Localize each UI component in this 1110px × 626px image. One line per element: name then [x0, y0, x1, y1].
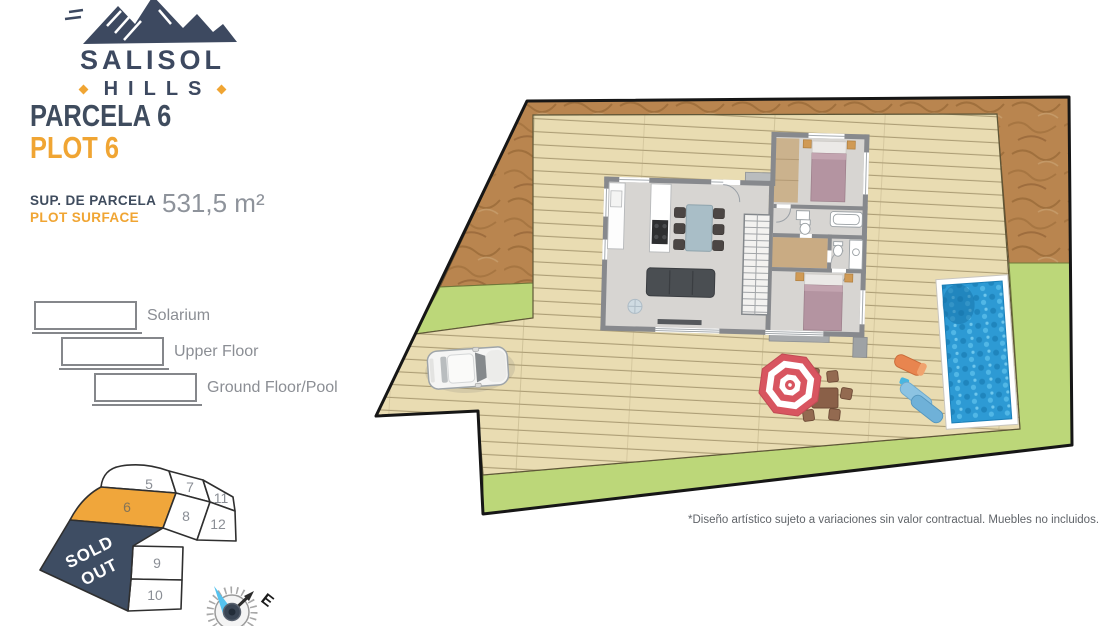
staircase: [742, 214, 771, 315]
legend-swatch: [94, 373, 197, 402]
diamond-icon: [78, 85, 88, 95]
legend-label: Ground Floor/Pool: [207, 379, 338, 397]
plot-map: 5 7 11 6 8 12 9 10 SOLD OUT: [40, 465, 236, 611]
car-windshield: [475, 352, 487, 383]
legend-label: Solarium: [147, 307, 210, 325]
kitchen-sink: [611, 191, 622, 207]
ac-unit: [853, 337, 868, 357]
surface-label-en: PLOT SURFACE: [30, 210, 156, 225]
legend-item-ground-floor-pool: Ground Floor/Pool: [94, 373, 338, 402]
plot-number-5: 5: [145, 476, 153, 492]
ceiling-fan-symbol: [628, 299, 642, 313]
disclaimer-text: *Diseño artístico sujeto a variaciones s…: [688, 514, 1099, 526]
parcela-title: PARCELA 6: [30, 100, 171, 132]
car-mirror-left: [473, 347, 479, 351]
brand-logo: SALISOL HILLS: [55, 0, 250, 101]
site-plan: [376, 97, 1072, 514]
legend-item-solarium: Solarium: [34, 301, 210, 330]
plot-number-9: 9: [153, 555, 161, 571]
dining-table: [685, 205, 712, 252]
compass: E: [210, 586, 277, 626]
surface-labels: SUP. DE PARCELA PLOT SURFACE: [30, 193, 156, 225]
plot-number-6: 6: [123, 499, 131, 515]
bedroom1-wood-floor: [773, 138, 800, 203]
legend-swatch: [34, 301, 137, 330]
page: 5 7 11 6 8 12 9 10 SOLD OUT E: [0, 0, 1110, 626]
plot-number-12: 12: [210, 516, 226, 532]
surface-value: 531,5 m²: [162, 188, 265, 219]
diamond-icon: [217, 85, 227, 95]
brand-name: SALISOL: [55, 45, 250, 76]
dining-set: [673, 204, 724, 251]
sofa: [646, 268, 715, 298]
legend-item-upper-floor: Upper Floor: [61, 337, 258, 366]
plot-number-7: 7: [186, 479, 194, 495]
cooktop: [652, 220, 669, 244]
surface-label-es: SUP. DE PARCELA: [30, 193, 156, 208]
car-mirror-right: [475, 383, 481, 387]
plot-number-10: 10: [147, 587, 163, 603]
hallway-wood-floor: [771, 237, 828, 268]
legend-label: Upper Floor: [174, 343, 258, 361]
legend-swatch: [61, 337, 164, 366]
mountain-icon: [55, 0, 250, 44]
pool: [936, 275, 1018, 430]
plot-number-8: 8: [182, 508, 190, 524]
plot-header: PARCELA 6 PLOT 6: [30, 100, 202, 164]
plot-title: PLOT 6: [30, 132, 119, 165]
compass-east-label: E: [258, 591, 277, 611]
plot-number-11: 11: [214, 490, 229, 506]
